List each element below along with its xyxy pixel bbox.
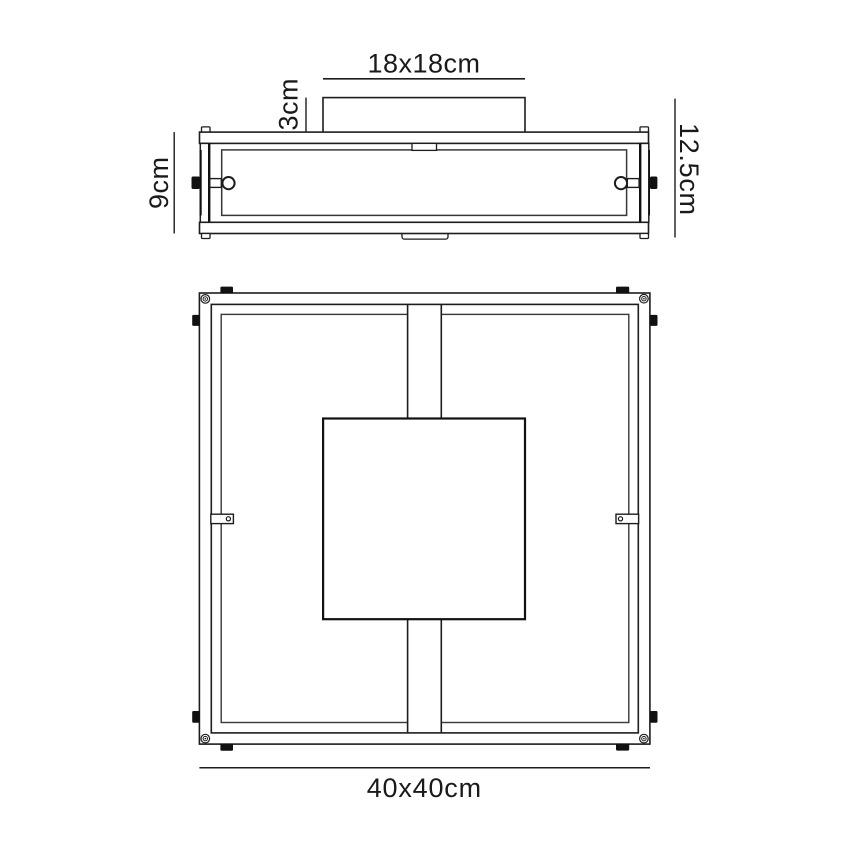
svg-text:18x18cm: 18x18cm: [367, 49, 480, 79]
svg-text:12.5cm: 12.5cm: [674, 123, 704, 216]
svg-text:40x40cm: 40x40cm: [367, 773, 482, 803]
svg-text:3cm: 3cm: [274, 78, 304, 131]
svg-text:9cm: 9cm: [144, 156, 174, 209]
